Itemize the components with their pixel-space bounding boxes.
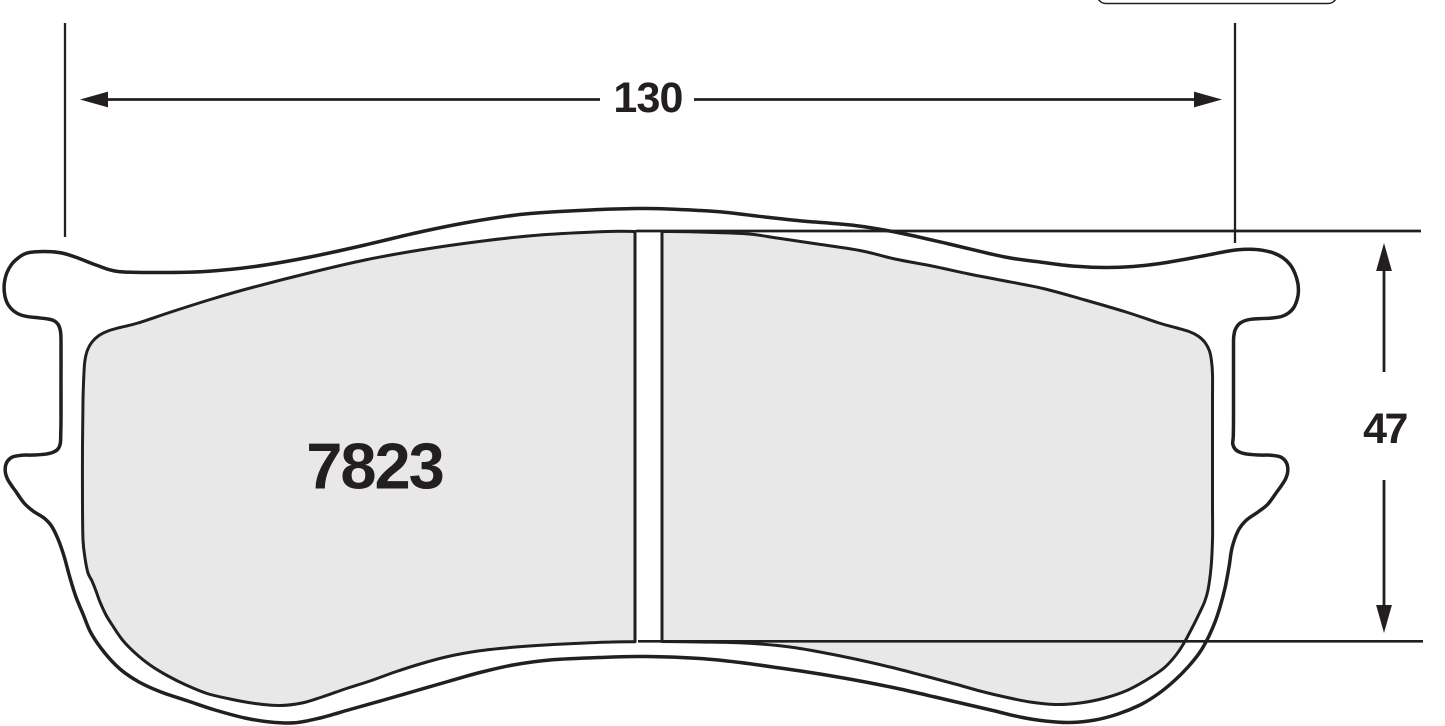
svg-text:130: 130	[613, 74, 682, 122]
svg-text:7823: 7823	[306, 430, 443, 503]
svg-text:47: 47	[1363, 405, 1407, 453]
